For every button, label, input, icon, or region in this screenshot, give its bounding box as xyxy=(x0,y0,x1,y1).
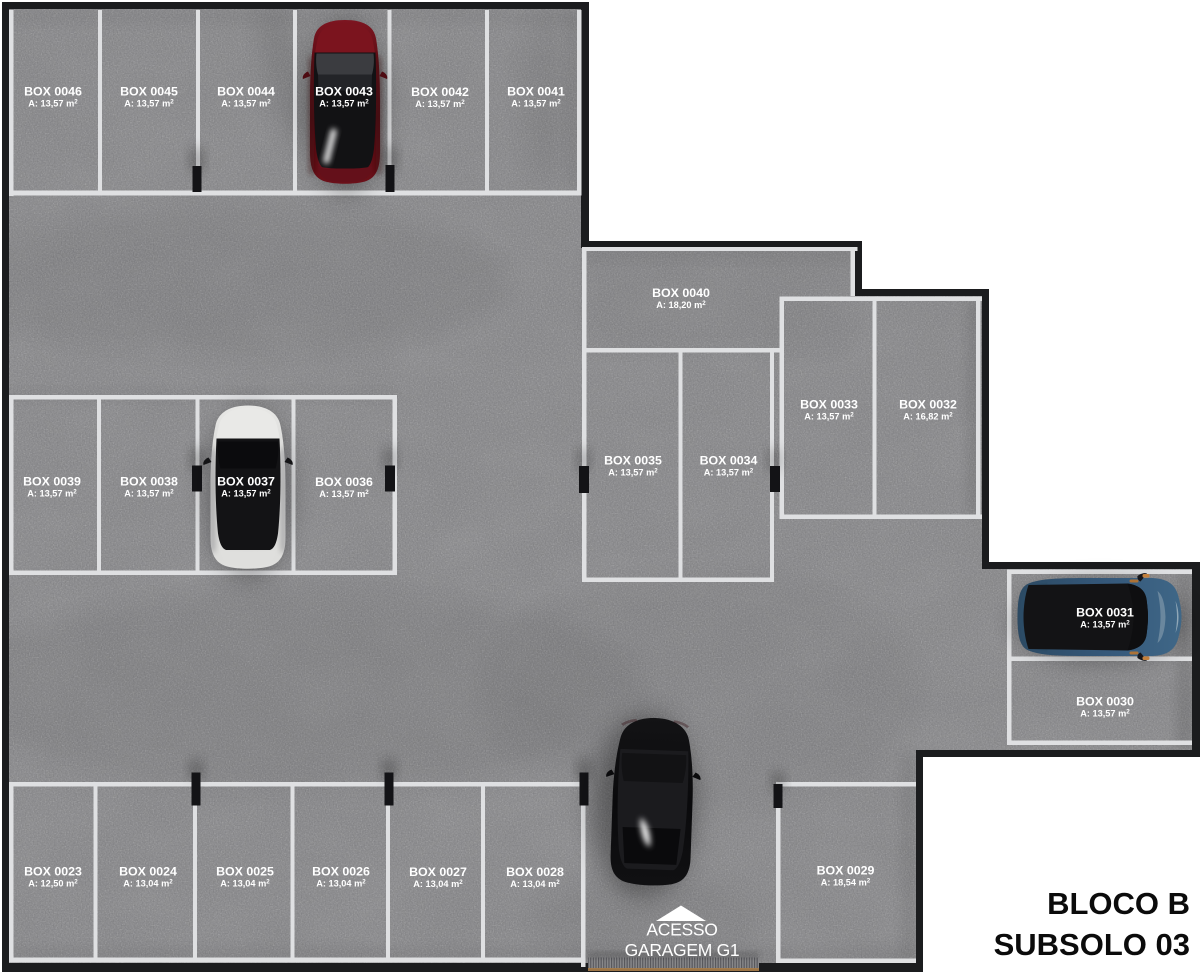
svg-text:A: 13,04 m2: A: 13,04 m2 xyxy=(220,879,270,889)
svg-text:A: 13,57 m2: A: 13,57 m2 xyxy=(608,468,658,478)
svg-text:BOX 0036: BOX 0036 xyxy=(315,475,373,489)
svg-text:ACESSO: ACESSO xyxy=(646,920,717,940)
svg-text:BOX 0040: BOX 0040 xyxy=(652,286,710,300)
svg-text:A: 13,57 m2: A: 13,57 m2 xyxy=(28,99,78,109)
svg-text:A: 13,57 m2: A: 13,57 m2 xyxy=(511,99,561,109)
svg-text:A: 13,57 m2: A: 13,57 m2 xyxy=(124,99,174,109)
svg-text:BOX 0037: BOX 0037 xyxy=(217,475,275,489)
svg-text:A: 18,20 m2: A: 18,20 m2 xyxy=(656,300,706,310)
svg-text:BOX 0042: BOX 0042 xyxy=(411,85,469,99)
svg-text:A: 18,54 m2: A: 18,54 m2 xyxy=(821,878,871,888)
svg-text:A: 13,57 m2: A: 13,57 m2 xyxy=(319,99,369,109)
svg-text:BOX 0034: BOX 0034 xyxy=(700,454,758,468)
svg-text:BOX 0032: BOX 0032 xyxy=(899,398,957,412)
svg-text:A: 16,82 m2: A: 16,82 m2 xyxy=(903,412,953,422)
svg-text:BOX 0046: BOX 0046 xyxy=(24,85,82,99)
svg-text:BOX 0024: BOX 0024 xyxy=(119,865,177,879)
svg-text:BOX 0035: BOX 0035 xyxy=(604,454,662,468)
svg-text:BOX 0027: BOX 0027 xyxy=(409,865,467,879)
svg-text:A: 13,04 m2: A: 13,04 m2 xyxy=(123,879,173,889)
svg-text:BOX 0026: BOX 0026 xyxy=(312,865,370,879)
svg-text:A: 13,57 m2: A: 13,57 m2 xyxy=(221,99,271,109)
svg-text:BOX 0039: BOX 0039 xyxy=(23,475,81,489)
svg-text:A: 13,57 m2: A: 13,57 m2 xyxy=(1080,620,1130,630)
svg-text:BOX 0033: BOX 0033 xyxy=(800,398,858,412)
svg-text:BOX 0044: BOX 0044 xyxy=(217,85,275,99)
svg-text:BOX 0043: BOX 0043 xyxy=(315,85,373,99)
svg-text:A: 13,04 m2: A: 13,04 m2 xyxy=(413,879,463,889)
svg-text:BOX 0025: BOX 0025 xyxy=(216,865,274,879)
svg-text:BOX 0041: BOX 0041 xyxy=(507,85,565,99)
svg-text:BOX 0030: BOX 0030 xyxy=(1076,695,1134,709)
svg-text:A: 13,57 m2: A: 13,57 m2 xyxy=(124,489,174,499)
svg-text:A: 13,57 m2: A: 13,57 m2 xyxy=(1080,709,1130,719)
svg-text:BOX 0023: BOX 0023 xyxy=(24,865,82,879)
svg-text:A: 13,57 m2: A: 13,57 m2 xyxy=(319,489,369,499)
svg-text:A: 13,57 m2: A: 13,57 m2 xyxy=(27,489,77,499)
svg-text:SUBSOLO 03: SUBSOLO 03 xyxy=(994,927,1190,962)
svg-text:GARAGEM G1: GARAGEM G1 xyxy=(625,940,740,960)
svg-text:A: 13,57 m2: A: 13,57 m2 xyxy=(415,99,465,109)
svg-text:A: 13,04 m2: A: 13,04 m2 xyxy=(510,879,560,889)
svg-text:BOX 0045: BOX 0045 xyxy=(120,85,178,99)
svg-text:BLOCO B: BLOCO B xyxy=(1047,886,1190,921)
svg-text:A: 12,50 m2: A: 12,50 m2 xyxy=(28,879,78,889)
svg-text:A: 13,57 m2: A: 13,57 m2 xyxy=(221,489,271,499)
svg-text:BOX 0031: BOX 0031 xyxy=(1076,606,1134,620)
svg-text:BOX 0029: BOX 0029 xyxy=(817,864,875,878)
svg-text:A: 13,57 m2: A: 13,57 m2 xyxy=(804,412,854,422)
svg-text:A: 13,04 m2: A: 13,04 m2 xyxy=(316,879,366,889)
svg-text:BOX 0038: BOX 0038 xyxy=(120,475,178,489)
svg-text:BOX 0028: BOX 0028 xyxy=(506,865,564,879)
svg-text:A: 13,57 m2: A: 13,57 m2 xyxy=(704,468,754,478)
